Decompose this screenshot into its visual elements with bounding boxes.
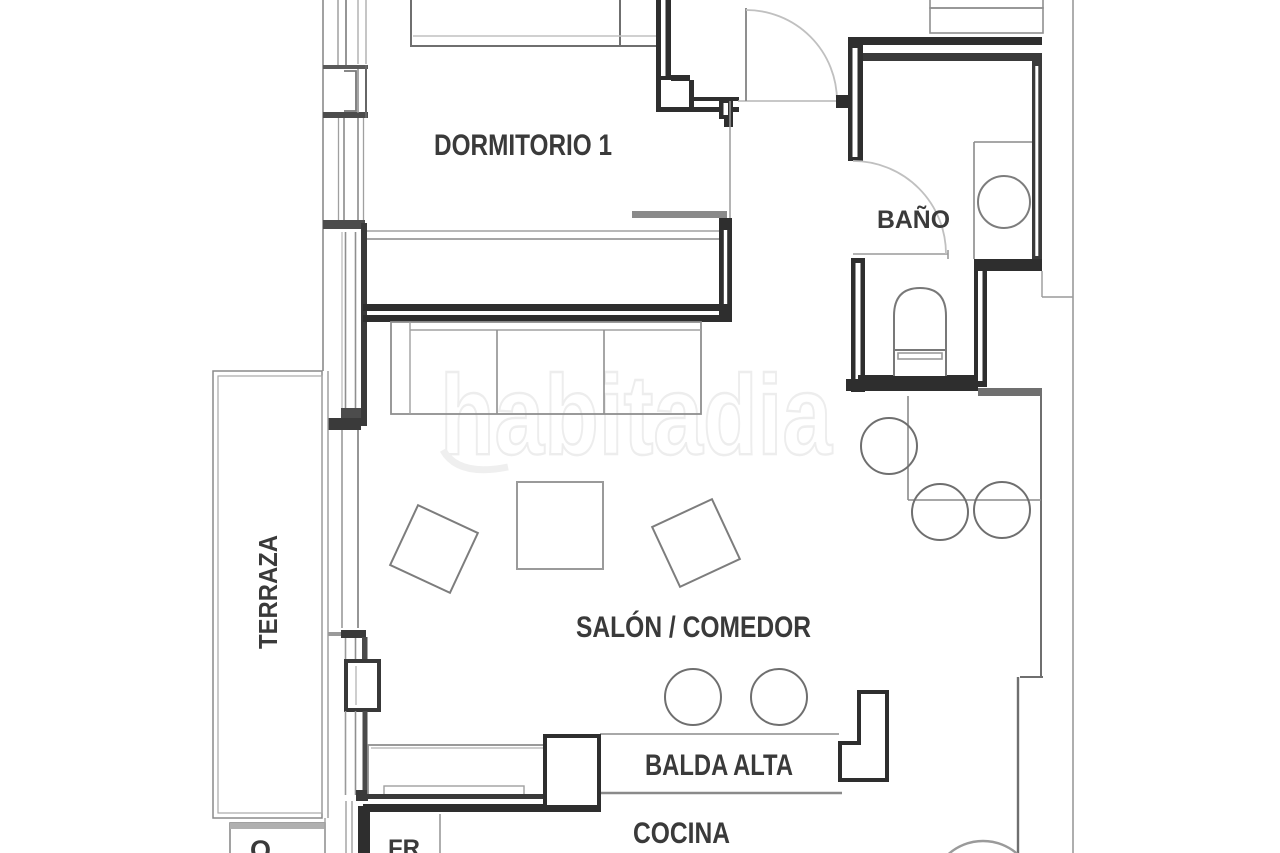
svg-text:habitadia: habitadia bbox=[440, 352, 833, 478]
svg-text:BAÑO: BAÑO bbox=[877, 204, 950, 234]
svg-text:FR: FR bbox=[388, 835, 420, 853]
svg-text:SALÓN / COMEDOR: SALÓN / COMEDOR bbox=[576, 610, 811, 644]
svg-text:TERRAZA: TERRAZA bbox=[253, 535, 283, 649]
svg-text:DORMITORIO 1: DORMITORIO 1 bbox=[434, 129, 612, 162]
svg-text:O: O bbox=[250, 835, 271, 853]
svg-text:COCINA: COCINA bbox=[633, 817, 730, 850]
svg-text:BALDA ALTA: BALDA ALTA bbox=[645, 749, 793, 782]
